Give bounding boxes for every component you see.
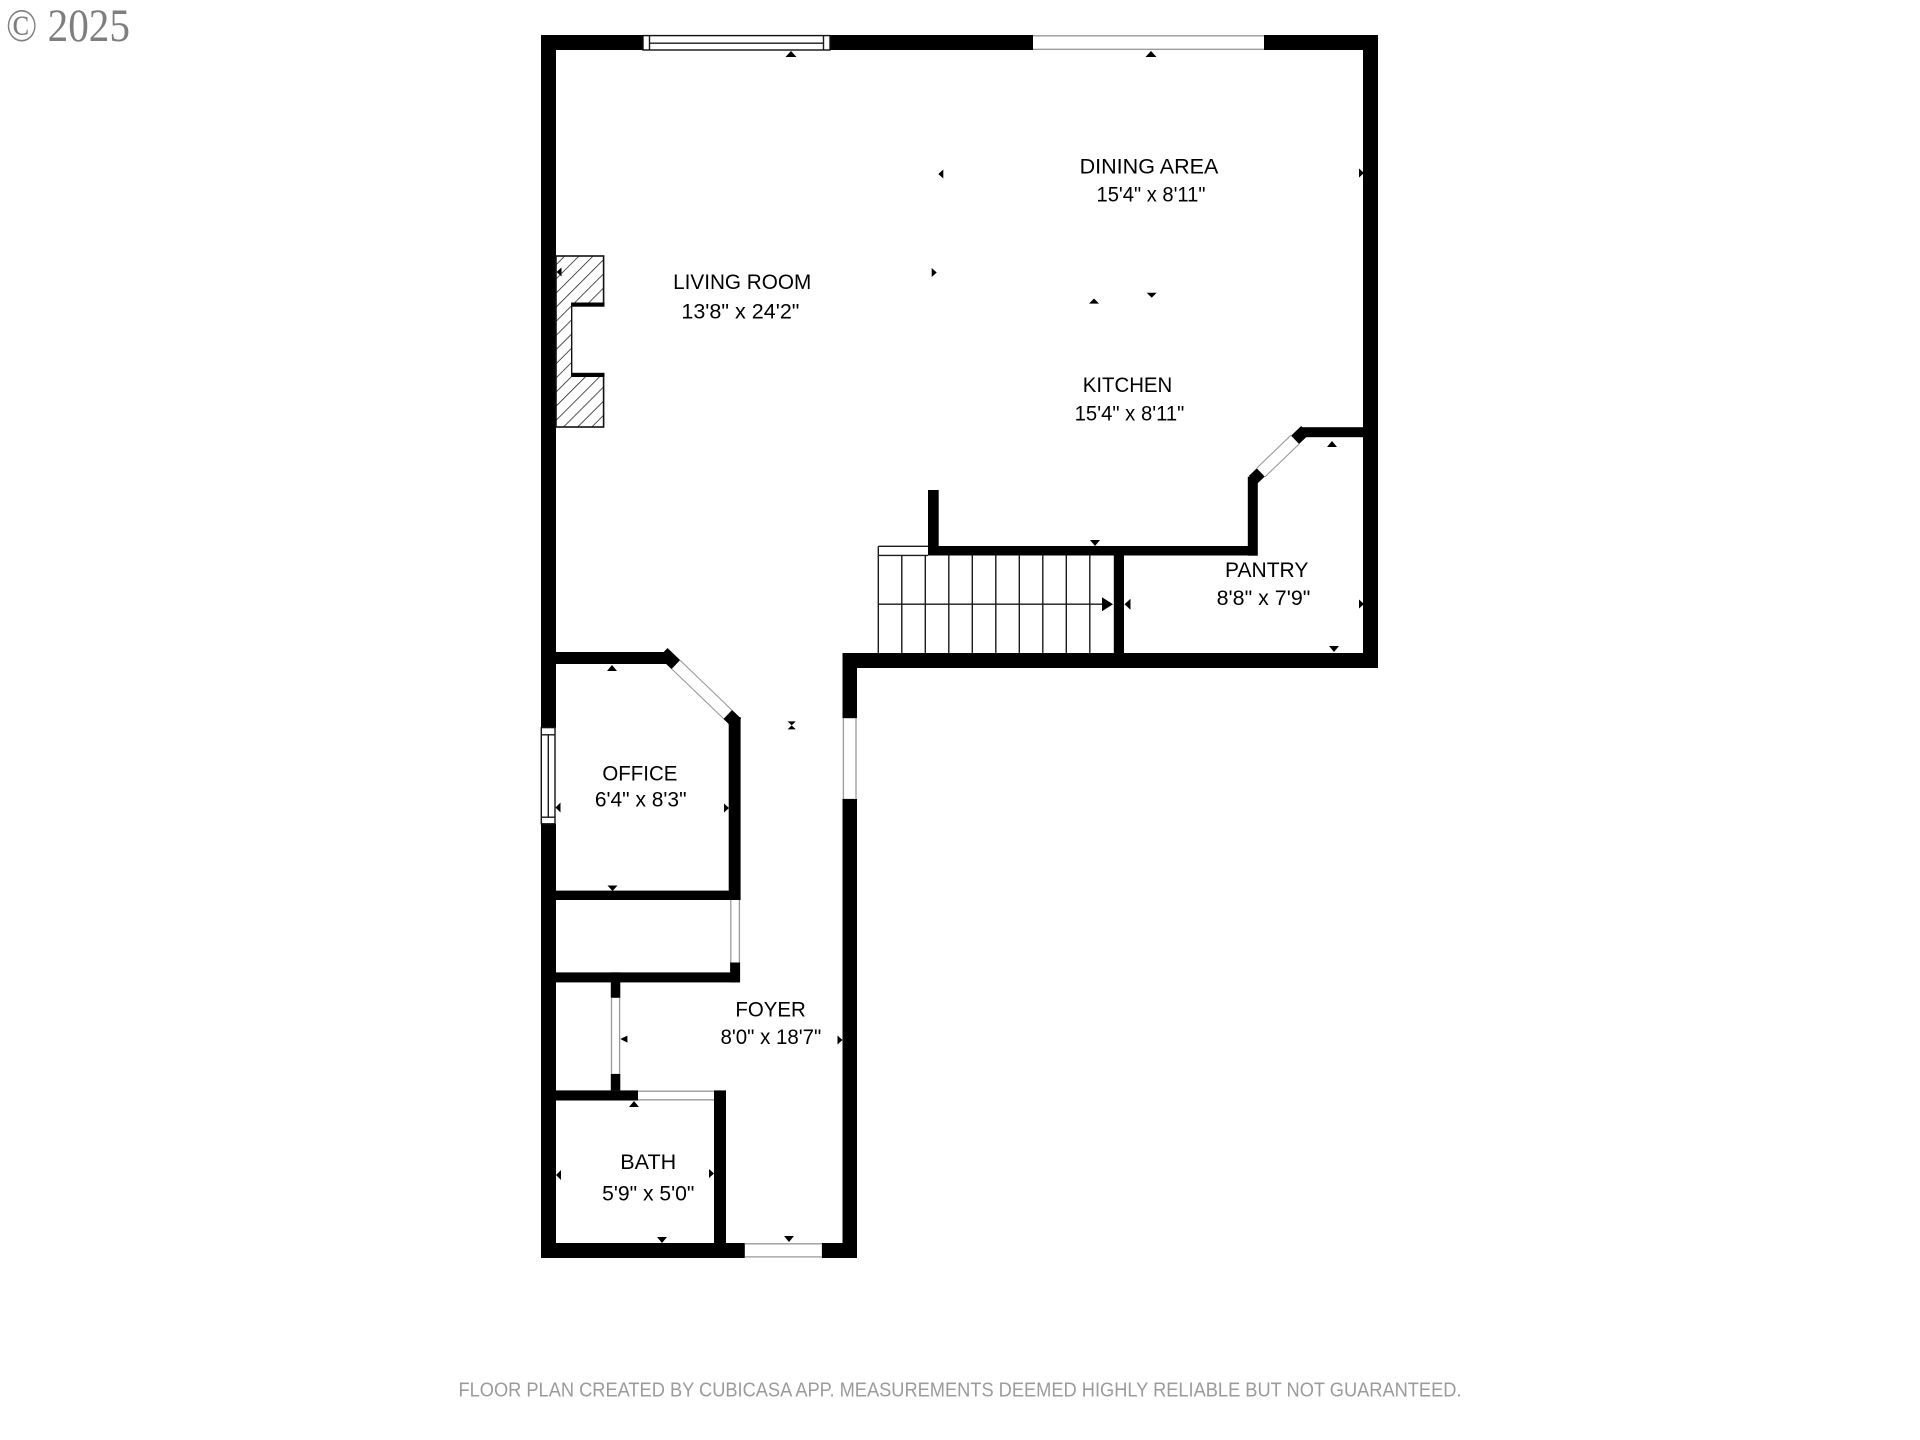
svg-text:15'4" x 8'11": 15'4" x 8'11" xyxy=(1075,402,1185,426)
svg-text:LIVING ROOM: LIVING ROOM xyxy=(673,270,811,294)
svg-text:8'0" x 18'7": 8'0" x 18'7" xyxy=(720,1025,821,1049)
svg-text:OFFICE: OFFICE xyxy=(602,762,677,786)
svg-text:© 2025: © 2025 xyxy=(6,0,130,52)
svg-text:FOYER: FOYER xyxy=(735,998,805,1022)
svg-text:DINING AREA: DINING AREA xyxy=(1080,155,1219,179)
svg-text:13'8" x 24'2": 13'8" x 24'2" xyxy=(681,300,799,324)
svg-text:6'4" x 8'3": 6'4" x 8'3" xyxy=(595,788,687,812)
svg-text:FLOOR PLAN CREATED BY CUBICASA: FLOOR PLAN CREATED BY CUBICASA APP. MEAS… xyxy=(459,1380,1462,1402)
svg-text:KITCHEN: KITCHEN xyxy=(1083,373,1173,397)
svg-text:5'9" x 5'0": 5'9" x 5'0" xyxy=(602,1182,694,1206)
svg-text:15'4" x 8'11": 15'4" x 8'11" xyxy=(1097,183,1206,207)
svg-text:PANTRY: PANTRY xyxy=(1225,558,1308,582)
svg-text:8'8" x 7'9": 8'8" x 7'9" xyxy=(1217,586,1311,610)
svg-text:BATH: BATH xyxy=(620,1150,676,1174)
